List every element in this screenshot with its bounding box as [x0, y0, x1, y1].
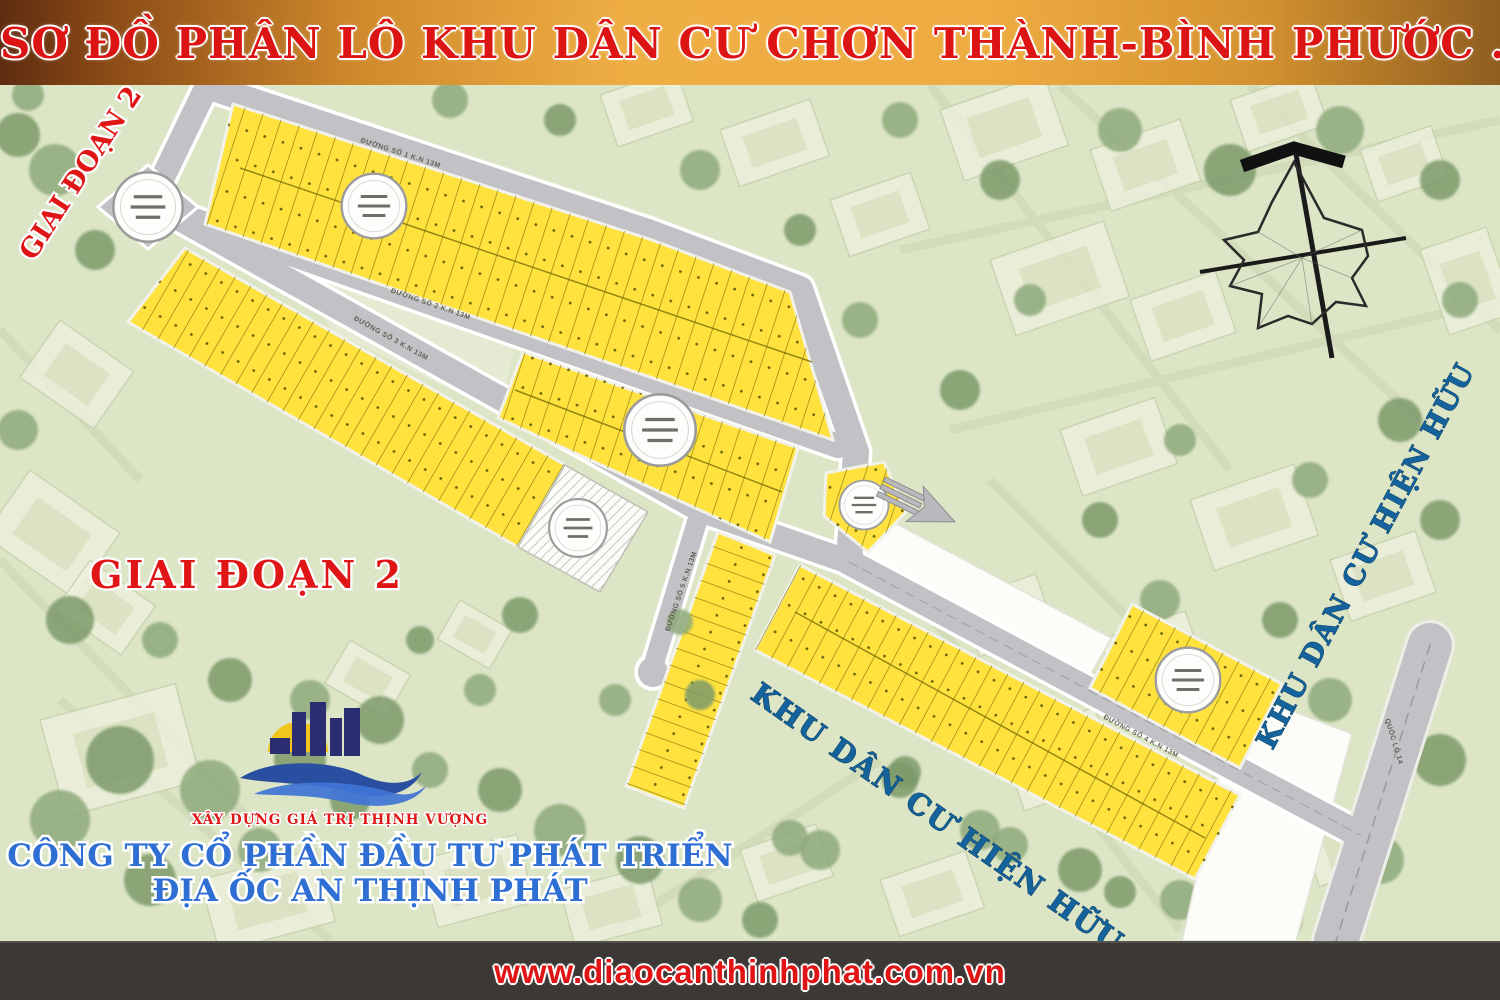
roundabout-badge — [113, 172, 182, 241]
tree — [142, 622, 178, 658]
tree — [478, 768, 522, 812]
tree — [356, 696, 404, 744]
tree — [1420, 160, 1460, 200]
tree — [1420, 500, 1460, 540]
tree — [678, 878, 722, 922]
website-link[interactable]: www.diaocanthinhphat.com.vn — [494, 943, 1006, 1000]
tree — [842, 302, 878, 338]
tree — [406, 626, 434, 654]
tree — [1164, 424, 1196, 456]
page-title: SƠ ĐỒ PHÂN LÔ KHU DÂN CƯ CHƠN THÀNH-BÌNH… — [0, 0, 1500, 88]
block-a-badge — [342, 174, 407, 239]
tree — [882, 102, 918, 138]
tree — [1098, 108, 1142, 152]
site-plan-map: GIAI ĐOẠN 2 GIAI ĐOẠN 2 KHU DÂN CƯ HIỆN … — [0, 85, 1500, 941]
tree — [180, 760, 240, 820]
tree — [800, 830, 840, 870]
tree — [742, 902, 778, 938]
tree — [1082, 502, 1118, 538]
land-subdivision-poster: SƠ ĐỒ PHÂN LÔ KHU DÂN CƯ CHƠN THÀNH-BÌNH… — [0, 0, 1500, 1000]
tree — [784, 214, 816, 246]
tree — [980, 160, 1020, 200]
tree — [75, 230, 115, 270]
tree — [685, 680, 715, 710]
tree — [1014, 284, 1046, 316]
tree — [412, 752, 448, 788]
tree — [86, 726, 154, 794]
block-f-badge — [1156, 648, 1221, 713]
company-slogan: XÂY DỰNG GIÁ TRỊ THỊNH VƯỢNG — [192, 812, 488, 828]
tree — [1442, 282, 1478, 318]
block-c-badge — [624, 394, 695, 465]
block-b-badge — [549, 499, 607, 557]
tree — [502, 597, 538, 633]
title-banner: SƠ ĐỒ PHÂN LÔ KHU DÂN CƯ CHƠN THÀNH-BÌNH… — [0, 0, 1500, 85]
tree — [940, 370, 980, 410]
tree — [1104, 876, 1136, 908]
tree — [464, 674, 496, 706]
tree — [46, 596, 94, 644]
footer-bar: www.diaocanthinhphat.com.vn — [0, 941, 1500, 1000]
tree — [208, 658, 252, 702]
tree — [544, 104, 576, 136]
tree — [1262, 602, 1298, 638]
tree — [1292, 462, 1328, 498]
tree — [680, 150, 720, 190]
phase2-label: GIAI ĐOẠN 2 — [90, 552, 404, 597]
company-name-line2: ĐỊA ỐC AN THỊNH PHÁT — [152, 867, 587, 909]
tree — [599, 684, 631, 716]
tree — [1316, 106, 1364, 154]
